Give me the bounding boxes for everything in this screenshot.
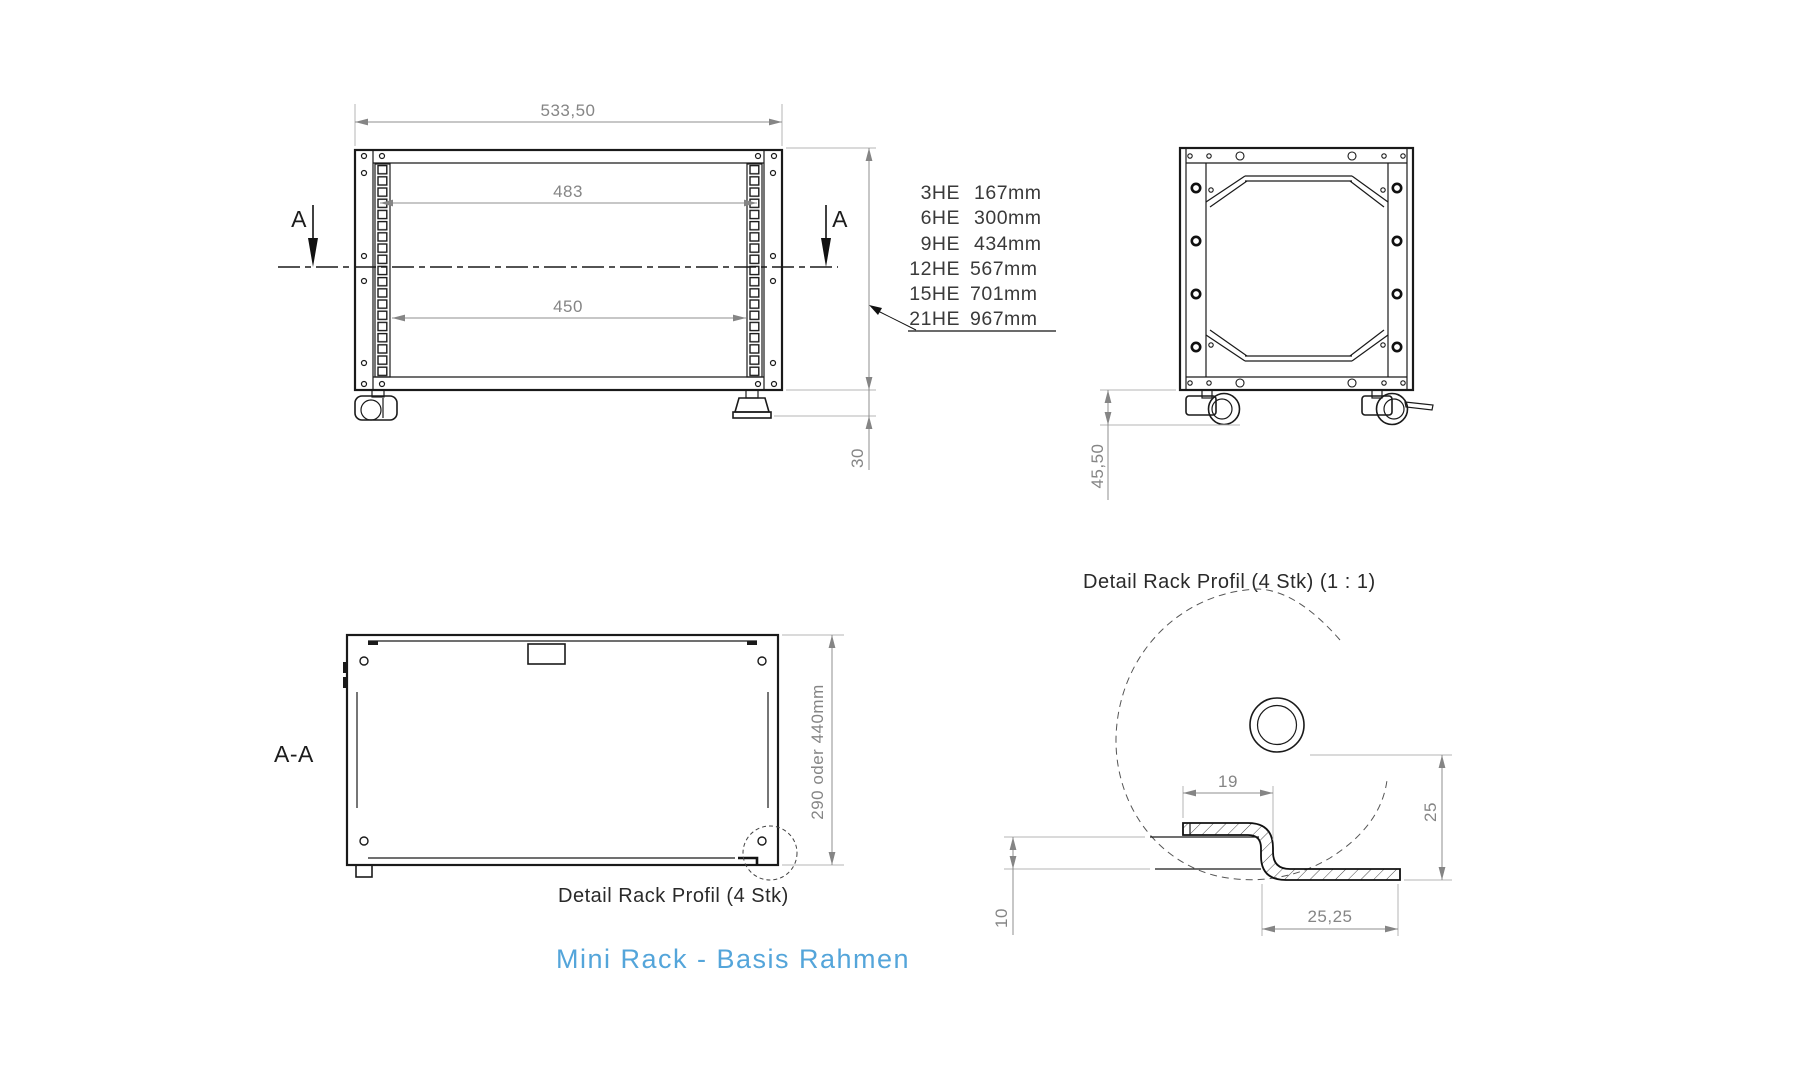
dim-4550-label: 45,50: [1088, 443, 1107, 488]
section-dim-height: 290 oder 440mm: [782, 635, 844, 865]
detail-hole-inner: [1258, 706, 1297, 745]
he-row-label: 3HE: [921, 182, 960, 204]
detail-callout-label: Detail Rack Profil (4 Stk): [558, 885, 789, 907]
side-small-holes: [1188, 152, 1405, 387]
detail-view-title: Detail Rack Profil (4 Stk) (1 : 1): [1083, 571, 1376, 593]
section-view: A-A 290 oder 440mm Detail Rack Profil (4…: [274, 635, 844, 907]
he-row-value: 167mm: [974, 182, 1042, 204]
side-corner-gussets: [1206, 176, 1388, 361]
section-top-notch: [528, 644, 565, 664]
he-row-value: 567mm: [970, 258, 1038, 280]
side-dim-caster-height: 45,50: [1088, 390, 1240, 500]
side-frame-outline: [1180, 148, 1413, 390]
dim-290-440-label: 290 oder 440mm: [808, 684, 827, 820]
caster-brake-lever: [1405, 402, 1433, 410]
he-row-label: 15HE: [909, 283, 960, 305]
he-row-label: 6HE: [921, 207, 960, 229]
side-left-caster: [1186, 390, 1240, 425]
front-dim-483: 483: [380, 182, 757, 206]
he-row-label: 9HE: [921, 233, 960, 255]
front-view: 533,50 483 450 A A: [278, 101, 1056, 470]
detail-callout-circle: [743, 826, 797, 880]
drawing-canvas: 533,50 483 450 A A: [0, 0, 1800, 1068]
front-right-foot: [733, 390, 771, 418]
detail-dim-25: 25: [1310, 755, 1452, 880]
detail-profile-section: [1183, 823, 1400, 880]
he-row-value: 300mm: [974, 207, 1042, 229]
front-left-caster: [355, 390, 397, 420]
drawing-title: Mini Rack - Basis Rahmen: [556, 944, 910, 974]
detail-dim-10: 10: [992, 837, 1150, 935]
cad-drawing-sheet: 533,50 483 450 A A: [0, 0, 1800, 1068]
section-outline: [347, 635, 778, 865]
he-height-table: 3HE 167mm 6HE 300mm 9HE 434mm 12HE 567mm…: [869, 182, 1056, 331]
he-row-value: 434mm: [974, 233, 1042, 255]
he-row-label: 12HE: [909, 258, 960, 280]
front-right-rack-rail: [747, 164, 762, 377]
front-dim-height: 30: [774, 148, 876, 470]
dim-2525-label: 25,25: [1307, 907, 1352, 926]
side-right-caster: [1362, 390, 1433, 425]
dim-19-label: 19: [1218, 772, 1238, 791]
dim-483-label: 483: [553, 182, 583, 201]
he-row-value: 701mm: [970, 283, 1038, 305]
front-left-rack-rail: [375, 164, 390, 377]
section-marker-left-label: A: [291, 206, 307, 232]
section-foot: [356, 865, 372, 877]
dim-450-label: 450: [553, 297, 583, 316]
section-marker-right-label: A: [832, 206, 848, 232]
he-leader-arrow: [869, 305, 882, 315]
dim-width-top-label: 533,50: [541, 101, 596, 120]
detail-dim-2525: 25,25: [1262, 884, 1398, 936]
dim-30-label: 30: [848, 448, 867, 468]
detail-view: Detail Rack Profil (4 Stk) (1 : 1) 19: [992, 571, 1452, 936]
side-rail-holes: [1192, 184, 1401, 351]
front-dim-450: 450: [392, 297, 746, 321]
side-view: 45,50: [1088, 148, 1433, 500]
he-row-label: 21HE: [909, 308, 960, 330]
he-row-value: 967mm: [970, 308, 1038, 330]
section-view-label: A-A: [274, 741, 314, 767]
dim-10-label: 10: [992, 908, 1011, 928]
section-corner-holes: [360, 657, 766, 845]
front-dim-width: 533,50: [355, 101, 782, 146]
dim-25-label: 25: [1421, 802, 1440, 822]
